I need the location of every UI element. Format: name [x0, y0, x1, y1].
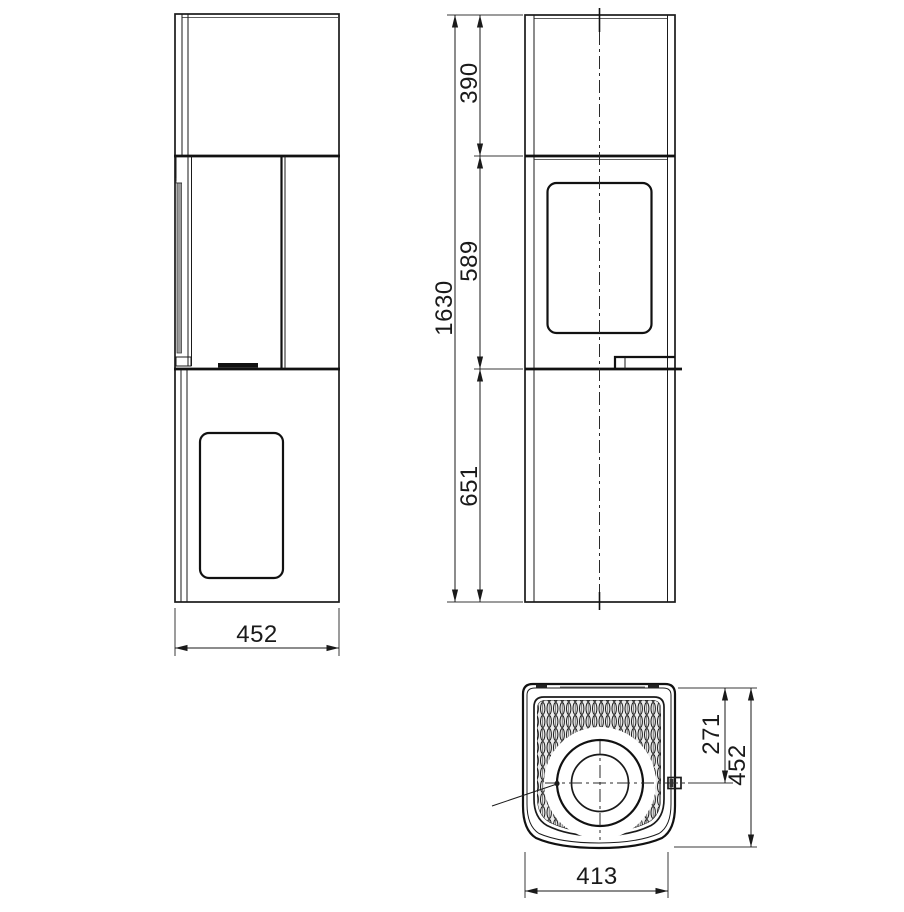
stove-dimension-drawing: 452 [0, 0, 904, 912]
side-width-value: 452 [236, 621, 278, 648]
side-hinge-foot [176, 357, 191, 366]
side-width-dimension: 452 [175, 608, 339, 656]
side-view: 452 [174, 14, 340, 656]
top-hinge-mark-left [536, 685, 547, 689]
side-firebox-section [176, 156, 285, 368]
top-depth-dimensions: 271 452 [674, 688, 757, 847]
flue-center-value: 271 [698, 713, 725, 755]
top-hinge-mark-right [648, 685, 659, 689]
side-base-section [181, 370, 283, 602]
depth-value: 452 [724, 744, 751, 786]
middle-section-value: 589 [456, 240, 483, 282]
total-height-value: 1630 [431, 280, 458, 335]
front-height-dimensions: 1630 390 589 651 [431, 15, 523, 602]
side-handle-bar [218, 363, 258, 368]
width-value: 413 [576, 863, 618, 890]
top-view: 271 452 413 [492, 684, 757, 898]
flue-leader-dot [554, 781, 559, 786]
side-glass-edge-shaded [177, 183, 182, 353]
base-section-value: 651 [456, 465, 483, 507]
technical-drawing-canvas: 452 [0, 0, 904, 912]
front-view: 1630 390 589 651 [431, 8, 682, 610]
side-base-panel-window [200, 433, 283, 578]
top-section-value: 390 [456, 62, 483, 104]
top-width-dimension: 413 [525, 852, 668, 898]
front-door-handle [615, 357, 675, 369]
side-top-panel-lines [182, 14, 188, 156]
